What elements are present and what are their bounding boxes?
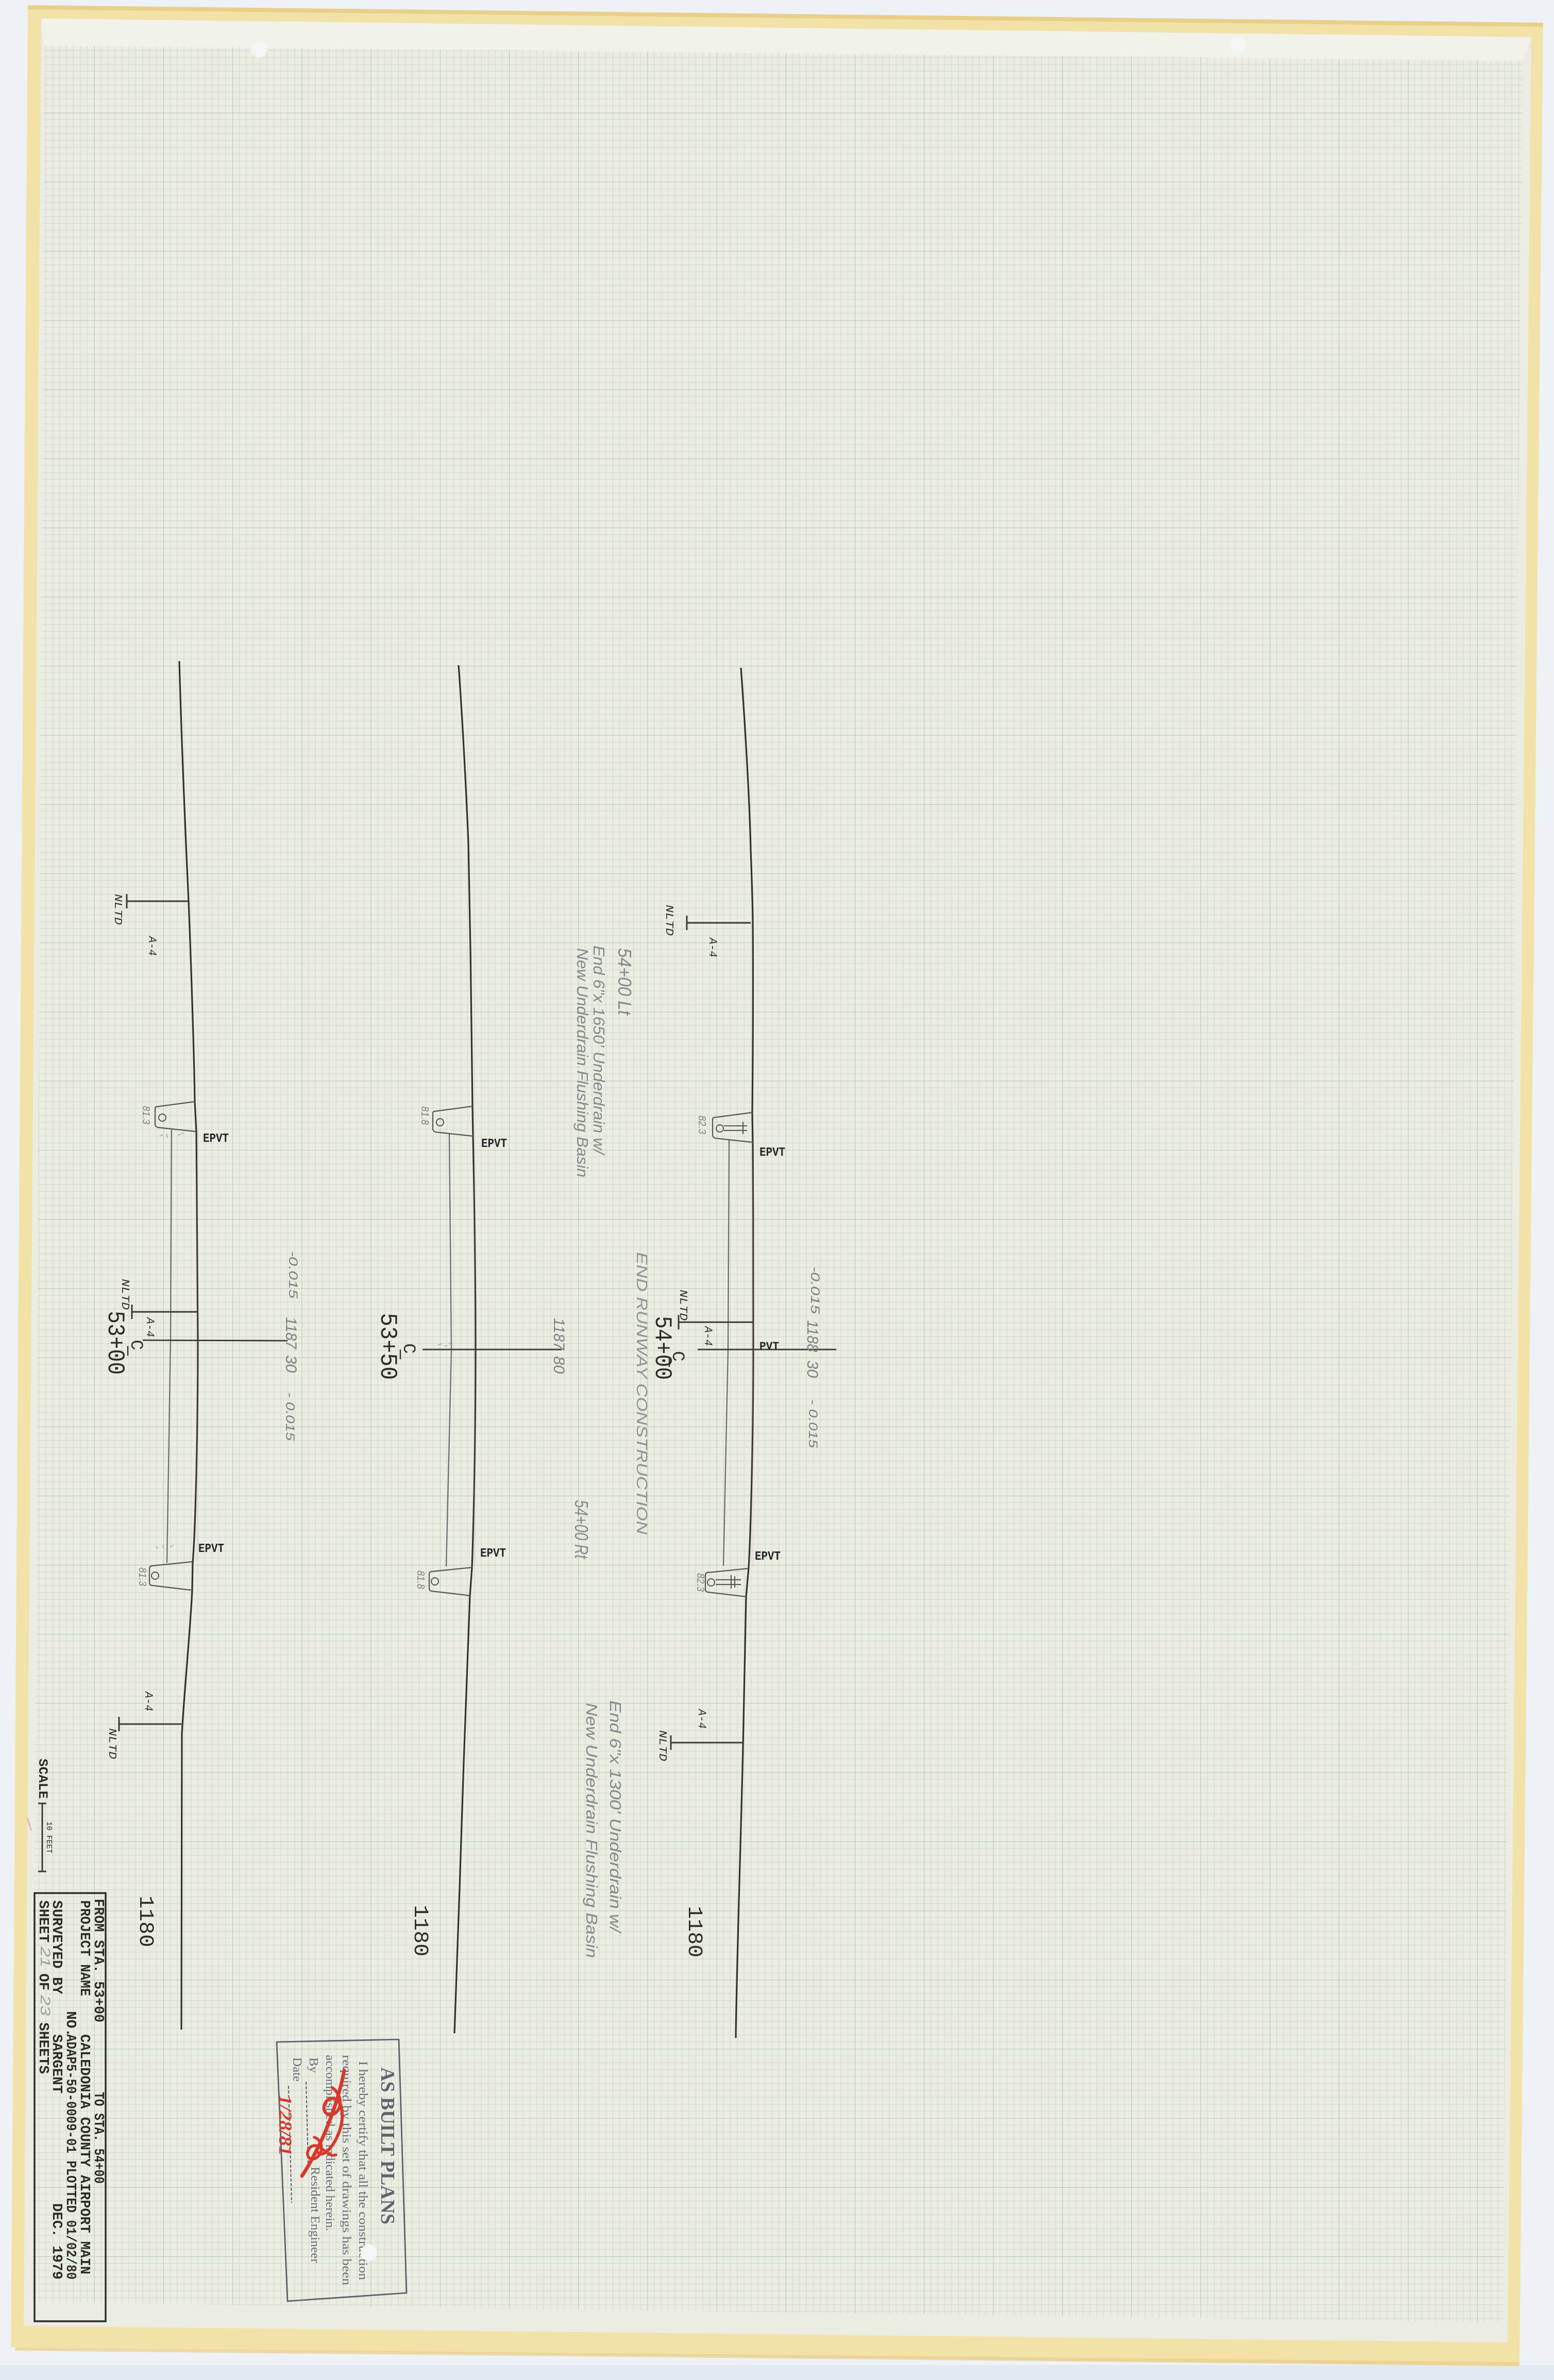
svg-text:A-4: A-4 (701, 1325, 714, 1346)
svg-text:PROJECT NAME: PROJECT NAME (76, 1900, 92, 1996)
svg-text:- 0.015: - 0.015 (283, 1392, 297, 1441)
svg-text:TO STA. 54+00: TO STA. 54+00 (90, 2092, 106, 2184)
svg-text:DEC. 1979: DEC. 1979 (48, 2203, 64, 2280)
svg-text:AS BUILT PLANS: AS BUILT PLANS (377, 2067, 398, 2224)
svg-text:OF: OF (35, 1973, 50, 1990)
svg-text:EPVT: EPVT (481, 1137, 507, 1151)
svg-text:A-4: A-4 (145, 935, 158, 956)
svg-text:81.3: 81.3 (140, 1106, 151, 1124)
svg-text:EPVT: EPVT (755, 1550, 781, 1564)
svg-text:Date: Date (290, 2057, 303, 2082)
svg-text:NLTD: NLTD (656, 1730, 668, 1761)
svg-text:NLTD: NLTD (677, 1290, 688, 1321)
svg-text:EPVT: EPVT (480, 1547, 506, 1561)
svg-text:EPVT: EPVT (203, 1132, 229, 1146)
svg-text:81.8: 81.8 (419, 1106, 430, 1125)
svg-text:30: 30 (804, 1360, 821, 1378)
svg-text:SCALE: SCALE (35, 1759, 50, 1799)
svg-text:FROM STA. 53+00: FROM STA. 53+00 (90, 1899, 106, 2022)
svg-text:1187: 1187 (550, 1318, 567, 1351)
svg-text:SHEETS: SHEETS (35, 2022, 50, 2074)
svg-text:A-4: A-4 (143, 1316, 156, 1337)
svg-text:1187: 1187 (282, 1317, 299, 1349)
svg-text:1188: 1188 (804, 1320, 821, 1352)
svg-text:1180: 1180 (133, 1896, 157, 1947)
svg-text:-0.015: -0.015 (286, 1251, 300, 1299)
svg-text:-0.015: -0.015 (808, 1267, 822, 1314)
svg-text:ADAP5-50-0009-01 PLOTTED 01/02: ADAP5-50-0009-01 PLOTTED 01/02/80 (62, 2034, 78, 2280)
svg-text:53+50: 53+50 (374, 1313, 401, 1380)
svg-text:1180: 1180 (682, 1906, 705, 1957)
svg-text:1180: 1180 (408, 1905, 431, 1956)
svg-text:A-4: A-4 (695, 1708, 708, 1729)
svg-text:- 0.015: - 0.015 (806, 1399, 820, 1448)
svg-text:NO.: NO. (62, 2011, 78, 2037)
svg-text:END RUNWAY CONSTRUCTION: END RUNWAY CONSTRUCTION (633, 1252, 650, 1534)
svg-text:81.8: 81.8 (415, 1571, 426, 1589)
svg-text:PVT: PVT (759, 1340, 779, 1353)
svg-text:53+00: 53+00 (102, 1311, 128, 1375)
svg-text:EPVT: EPVT (198, 1542, 224, 1556)
svg-text:A-4: A-4 (706, 937, 719, 957)
svg-text:NLTD: NLTD (663, 905, 674, 936)
svg-text:NLTD: NLTD (119, 1279, 130, 1310)
svg-text:21: 21 (38, 1946, 53, 1967)
svg-text:54+00 Lt: 54+00 Lt (614, 948, 635, 1016)
svg-text:81.3: 81.3 (137, 1567, 148, 1586)
svg-text:CALEDONIA COUNTY AIRPORT MAIN: CALEDONIA COUNTY AIRPORT MAIN (76, 2034, 92, 2274)
svg-text:New Underdrain Flushing Basin: New Underdrain Flushing Basin (573, 948, 592, 1177)
svg-text:By: By (307, 2057, 320, 2073)
svg-text:54+00: 54+00 (649, 1316, 675, 1380)
svg-text:A-4: A-4 (142, 1691, 155, 1711)
svg-text:10 FEET: 10 FEET (44, 1821, 53, 1853)
svg-text:82.3: 82.3 (695, 1573, 706, 1592)
svg-text:End 6"x 1650' Underdrain w/: End 6"x 1650' Underdrain w/ (590, 946, 608, 1156)
svg-text:End 6"x 1300' Underdrain w/: End 6"x 1300' Underdrain w/ (606, 1700, 624, 1934)
svg-text:30: 30 (282, 1355, 299, 1373)
svg-text:SHEET: SHEET (35, 1900, 50, 1943)
svg-text:82.3: 82.3 (696, 1116, 707, 1134)
svg-text:EPVT: EPVT (759, 1146, 785, 1160)
svg-text:80: 80 (550, 1356, 567, 1374)
svg-text:23: 23 (38, 1995, 53, 2016)
svg-text:54+00 Rt: 54+00 Rt (571, 1500, 592, 1560)
svg-text:1/28/81: 1/28/81 (275, 2095, 296, 2156)
svg-text:NLTD: NLTD (111, 894, 123, 925)
svg-text:NLTD: NLTD (106, 1728, 117, 1759)
svg-text:New Underdrain Flushing Basin: New Underdrain Flushing Basin (583, 1703, 601, 1958)
svg-text:Resident Engineer: Resident Engineer (308, 2167, 322, 2263)
